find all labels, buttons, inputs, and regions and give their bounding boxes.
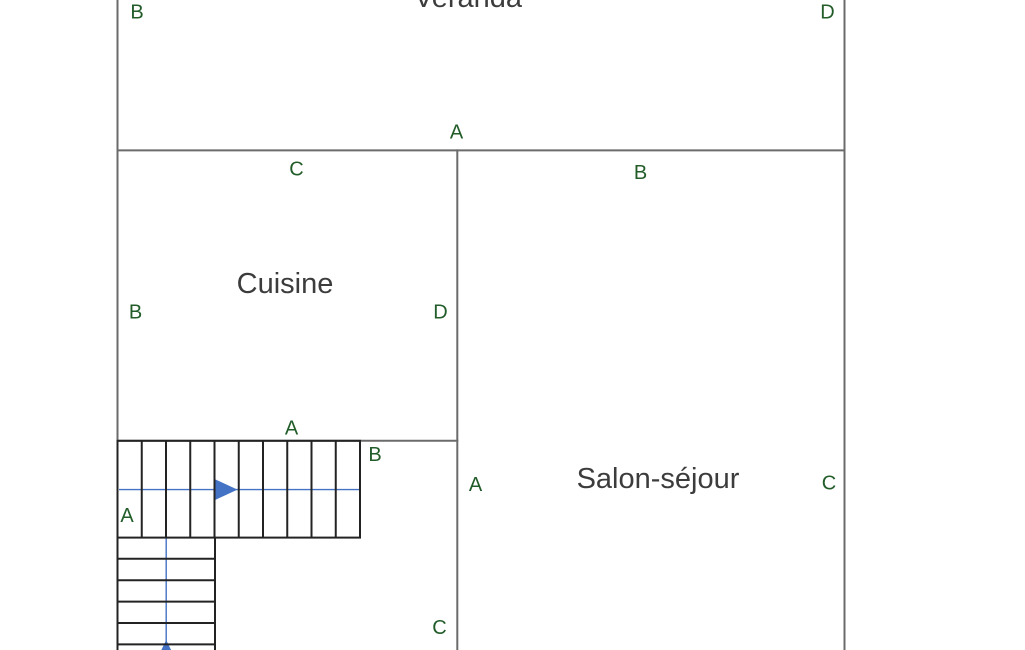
svg-text:A: A — [285, 418, 299, 440]
svg-text:B: B — [130, 2, 143, 24]
svg-text:C: C — [822, 473, 836, 495]
svg-text:D: D — [820, 2, 834, 24]
svg-text:A: A — [469, 474, 483, 496]
svg-text:Veranda: Veranda — [414, 0, 523, 14]
svg-text:B: B — [634, 162, 647, 184]
svg-text:Salon-séjour: Salon-séjour — [577, 463, 740, 495]
svg-text:B: B — [129, 302, 142, 324]
svg-text:A: A — [450, 122, 464, 144]
svg-text:B: B — [368, 444, 381, 466]
svg-text:A: A — [120, 505, 134, 527]
svg-text:Cuisine: Cuisine — [237, 268, 334, 300]
svg-text:C: C — [432, 617, 446, 639]
svg-text:D: D — [433, 302, 447, 324]
svg-text:C: C — [289, 159, 303, 181]
